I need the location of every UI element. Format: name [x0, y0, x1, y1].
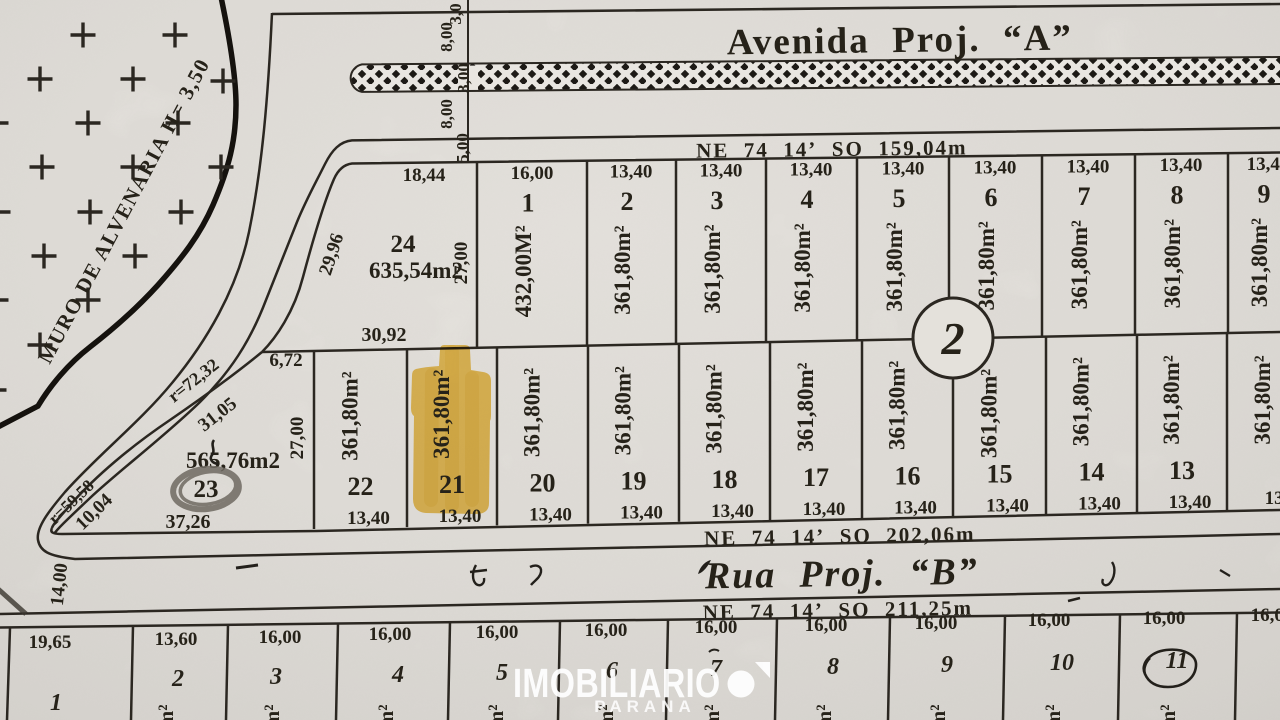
svg-text:24: 24: [391, 231, 417, 258]
svg-text:27,00: 27,00: [451, 242, 472, 285]
svg-text:361,80m²: 361,80m²: [429, 370, 454, 459]
svg-text:16,00: 16,00: [805, 615, 848, 636]
svg-text:16,00: 16,00: [476, 622, 519, 643]
svg-text:13,40: 13,40: [620, 503, 663, 524]
svg-text:361,80m²: 361,80m²: [1067, 220, 1092, 309]
svg-text:13,40: 13,40: [1078, 494, 1121, 515]
svg-text:14: 14: [1079, 458, 1105, 487]
svg-text:3: 3: [711, 186, 724, 215]
svg-text:361,80m²: 361,80m²: [790, 223, 815, 312]
svg-text:20: 20: [530, 468, 556, 497]
svg-text:8,00: 8,00: [437, 99, 456, 129]
svg-text:4: 4: [391, 662, 404, 688]
svg-text:480,00m²: 480,00m²: [700, 704, 724, 720]
svg-text:3,0: 3,0: [446, 3, 465, 24]
svg-text:16: 16: [895, 461, 921, 490]
svg-text:2: 2: [621, 187, 634, 216]
svg-text:13,40: 13,40: [894, 497, 937, 518]
svg-text:9: 9: [1258, 180, 1271, 209]
svg-text:13,40: 13,40: [1160, 155, 1203, 176]
svg-text:361,80m²: 361,80m²: [611, 366, 636, 455]
svg-text:18,44: 18,44: [403, 165, 446, 186]
svg-text:7: 7: [1078, 182, 1091, 211]
svg-text:361,80m²: 361,80m²: [977, 369, 1002, 458]
svg-text:PARANA: PARANA: [594, 697, 695, 716]
svg-text:432,00M²: 432,00M²: [511, 225, 536, 317]
svg-text:13,40: 13,40: [986, 496, 1029, 517]
svg-text:361,80m²: 361,80m²: [520, 368, 545, 457]
svg-text:361,80m²: 361,80m²: [793, 362, 818, 451]
svg-text:13,40: 13,40: [1247, 154, 1280, 175]
svg-text:361,80m²: 361,80m²: [1250, 355, 1275, 444]
svg-text:2: 2: [941, 313, 965, 364]
svg-text:13,40: 13,40: [439, 506, 482, 527]
svg-text:27,00: 27,00: [287, 417, 308, 460]
svg-text:361,80m²: 361,80m²: [702, 364, 727, 453]
svg-text:13,40: 13,40: [1067, 156, 1110, 177]
svg-text:16,00: 16,00: [259, 627, 302, 648]
svg-text:15: 15: [987, 460, 1013, 489]
svg-text:480,00m²: 480,00m²: [812, 704, 836, 720]
svg-text:21: 21: [439, 470, 465, 499]
svg-text:13,40: 13,40: [529, 504, 572, 525]
svg-text:16,00: 16,00: [915, 613, 958, 634]
svg-text:8: 8: [827, 654, 839, 680]
svg-text:361,80m²: 361,80m²: [1160, 219, 1185, 308]
svg-text:Avenida Proj. “A”: Avenida Proj. “A”: [727, 18, 1074, 64]
svg-text:18: 18: [712, 465, 738, 494]
svg-text:13,40: 13,40: [1265, 488, 1280, 509]
svg-text:23: 23: [194, 476, 219, 503]
svg-text:16,00: 16,00: [1251, 605, 1280, 626]
svg-text:6,72: 6,72: [269, 350, 302, 371]
svg-text:16,00: 16,00: [369, 624, 412, 645]
svg-text:13,40: 13,40: [974, 157, 1017, 178]
svg-text:3: 3: [269, 664, 282, 690]
svg-text:480,00m²: 480,00m²: [484, 704, 508, 720]
svg-text:13,40: 13,40: [803, 499, 846, 520]
svg-text:361,80m²: 361,80m²: [1247, 218, 1272, 307]
svg-text:361,80m²: 361,80m²: [700, 224, 725, 313]
svg-text:8,00: 8,00: [437, 22, 456, 52]
svg-text:480,00m²: 480,00m²: [260, 704, 284, 720]
svg-text:13,40: 13,40: [711, 501, 754, 522]
svg-text:4: 4: [801, 185, 814, 214]
svg-text:361,80m²: 361,80m²: [1159, 355, 1184, 444]
svg-text:480,00m²: 480,00m²: [926, 704, 950, 720]
svg-text:37,26: 37,26: [166, 511, 211, 533]
svg-text:13: 13: [1169, 456, 1195, 485]
svg-text:13,40: 13,40: [610, 162, 653, 183]
svg-text:Rua Proj. “B”: Rua Proj. “B”: [703, 551, 979, 598]
svg-text:1: 1: [522, 188, 535, 217]
svg-text:13,40: 13,40: [882, 158, 925, 179]
svg-text:NE 74 14’ SO 202,06m: NE 74 14’ SO 202,06m: [704, 522, 976, 551]
svg-text:361,80m²: 361,80m²: [610, 225, 635, 314]
svg-text:3,00: 3,00: [454, 63, 473, 93]
svg-text:635,54m2: 635,54m2: [369, 258, 463, 283]
svg-text:9: 9: [941, 652, 953, 678]
svg-text:361,80m²: 361,80m²: [882, 222, 907, 311]
svg-text:13,40: 13,40: [700, 161, 743, 182]
svg-text:13,40: 13,40: [790, 160, 833, 181]
svg-text:14,00: 14,00: [47, 562, 72, 607]
svg-text:480,00m²: 480,00m²: [1156, 704, 1180, 720]
svg-text:16,00: 16,00: [511, 163, 554, 184]
svg-text:5: 5: [496, 660, 508, 686]
svg-text:5,00: 5,00: [453, 133, 472, 163]
svg-text:480,00m²: 480,00m²: [1041, 704, 1065, 720]
svg-text:17: 17: [803, 463, 829, 492]
svg-text:13,40: 13,40: [1169, 492, 1212, 513]
svg-text:2: 2: [171, 666, 184, 692]
svg-text:13,60: 13,60: [155, 629, 198, 650]
svg-text:16,00: 16,00: [585, 620, 628, 641]
svg-text:5: 5: [893, 184, 906, 213]
svg-text:480,00m²: 480,00m²: [154, 704, 178, 720]
svg-text:1: 1: [50, 690, 62, 716]
svg-text:361,80m²: 361,80m²: [338, 371, 363, 460]
svg-text:6: 6: [985, 183, 998, 212]
svg-text:22: 22: [348, 472, 374, 501]
svg-text:30,92: 30,92: [362, 324, 407, 346]
svg-text:19,65: 19,65: [29, 632, 72, 653]
svg-text:13,40: 13,40: [347, 508, 390, 529]
svg-text:16,00: 16,00: [1143, 608, 1186, 629]
svg-text:361,80m²: 361,80m²: [1069, 357, 1094, 446]
svg-text:16,00: 16,00: [1028, 610, 1071, 631]
svg-text:480,00m²: 480,00m²: [374, 704, 398, 720]
svg-text:361,80m²: 361,80m²: [885, 361, 910, 450]
svg-text:16,00: 16,00: [695, 617, 738, 638]
svg-text:361,80m²: 361,80m²: [974, 221, 999, 310]
svg-text:10: 10: [1050, 650, 1074, 676]
svg-text:8: 8: [1171, 181, 1184, 210]
svg-text:19: 19: [621, 467, 647, 496]
